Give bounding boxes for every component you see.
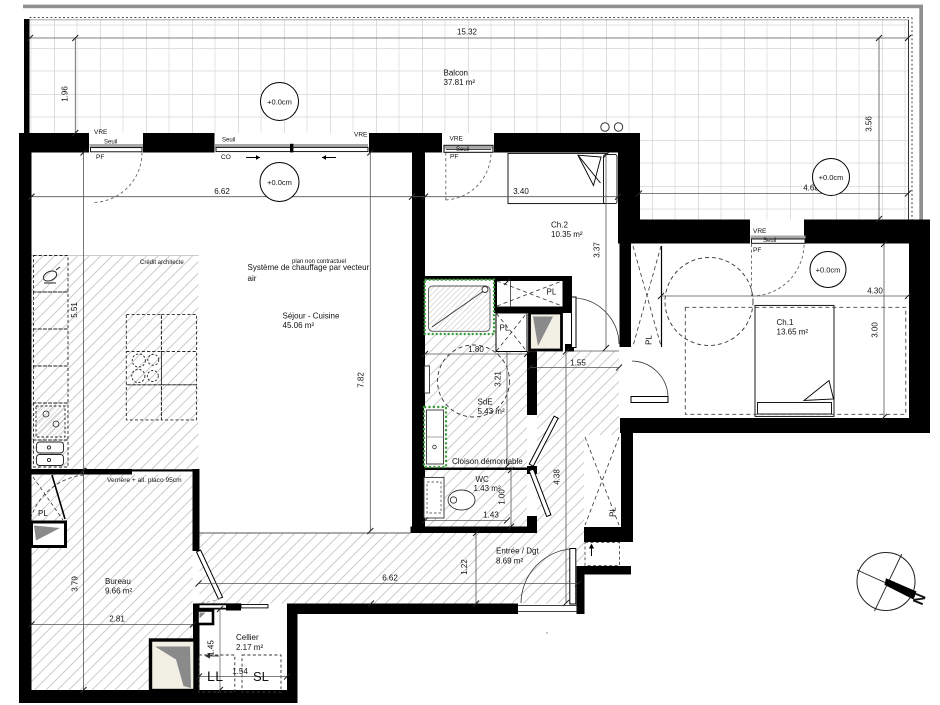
svg-text:5.51: 5.51 xyxy=(70,302,79,318)
svg-text:PL: PL xyxy=(547,288,557,297)
svg-text:15.32: 15.32 xyxy=(457,28,478,37)
svg-text:WC: WC xyxy=(476,475,490,484)
svg-text:CO: CO xyxy=(221,154,231,161)
svg-text:3.79: 3.79 xyxy=(71,576,80,592)
svg-text:Entrée / Dgt: Entrée / Dgt xyxy=(496,547,539,556)
svg-text:PL: PL xyxy=(609,507,618,517)
svg-text:+0.0cm: +0.0cm xyxy=(816,266,841,275)
svg-text:2.81: 2.81 xyxy=(109,615,125,624)
svg-text:+0.0cm: +0.0cm xyxy=(267,98,292,107)
svg-text:+0.0cm: +0.0cm xyxy=(819,173,844,182)
svg-text:1.43: 1.43 xyxy=(483,511,499,520)
svg-text:Séjour - Cuisine: Séjour - Cuisine xyxy=(283,312,340,321)
svg-text:LL: LL xyxy=(207,668,224,684)
svg-text:VRE: VRE xyxy=(354,132,368,139)
svg-text:4.38: 4.38 xyxy=(553,469,562,485)
svg-text:1.96: 1.96 xyxy=(61,86,70,102)
svg-text:7.82: 7.82 xyxy=(357,372,366,388)
svg-text:Seuil: Seuil xyxy=(456,147,469,153)
svg-text:PF: PF xyxy=(96,154,104,161)
svg-text:plan non contractuel: plan non contractuel xyxy=(292,259,346,265)
svg-text:1.45: 1.45 xyxy=(207,640,216,656)
svg-text:10.35 m²: 10.35 m² xyxy=(551,230,583,239)
svg-text:PF: PF xyxy=(450,154,458,161)
svg-text:VRE: VRE xyxy=(94,129,108,136)
svg-text:8.69 m²: 8.69 m² xyxy=(496,557,523,566)
svg-text:1.43 m²: 1.43 m² xyxy=(474,484,501,493)
svg-text:Seuil: Seuil xyxy=(222,138,235,144)
svg-text:Bureau: Bureau xyxy=(105,577,131,586)
svg-text:VRE: VRE xyxy=(753,228,767,235)
svg-text:VRE: VRE xyxy=(450,136,464,143)
svg-text:3.21: 3.21 xyxy=(494,371,503,387)
svg-text:4.30: 4.30 xyxy=(867,287,883,296)
svg-text:3.40: 3.40 xyxy=(513,187,529,196)
svg-text:3.00: 3.00 xyxy=(871,322,880,338)
svg-text:2.17 m²: 2.17 m² xyxy=(236,643,263,652)
svg-text:Seuil: Seuil xyxy=(104,140,117,146)
svg-text:37.81 m²: 37.81 m² xyxy=(444,78,476,87)
svg-text:1.54: 1.54 xyxy=(232,667,248,676)
svg-text:Verrière + all. placo 95cm: Verrière + all. placo 95cm xyxy=(107,477,182,484)
svg-text:air: air xyxy=(248,274,257,283)
svg-text:9.66 m²: 9.66 m² xyxy=(105,587,132,596)
svg-text:PL: PL xyxy=(38,509,48,518)
svg-text:6.62: 6.62 xyxy=(214,187,230,196)
svg-text:1.22: 1.22 xyxy=(460,559,469,575)
svg-text:Cloison démontable: Cloison démontable xyxy=(452,457,523,466)
svg-text:13.65 m²: 13.65 m² xyxy=(777,328,809,337)
svg-text:Balcon: Balcon xyxy=(444,69,468,78)
svg-text:5.43 m²: 5.43 m² xyxy=(478,407,505,416)
svg-text:3.37: 3.37 xyxy=(593,242,602,258)
svg-text:Seuil: Seuil xyxy=(763,238,776,244)
svg-text:1.80: 1.80 xyxy=(468,345,484,354)
svg-text:,: , xyxy=(546,628,548,635)
svg-text:PL: PL xyxy=(500,324,510,333)
svg-text:1.55: 1.55 xyxy=(570,359,586,368)
svg-text:45.06 m²: 45.06 m² xyxy=(283,321,315,330)
svg-text:6.62: 6.62 xyxy=(382,574,398,583)
svg-text:Crédit architecte: Crédit architecte xyxy=(140,260,184,266)
svg-text:SL: SL xyxy=(253,669,269,684)
svg-text:PL: PL xyxy=(645,335,654,345)
svg-text:3.56: 3.56 xyxy=(865,116,874,132)
svg-text:Ch.2: Ch.2 xyxy=(551,221,568,230)
svg-text:SdE: SdE xyxy=(478,398,493,407)
svg-text:Cellier: Cellier xyxy=(236,633,259,642)
svg-text:Ch.1: Ch.1 xyxy=(777,318,794,327)
svg-text:PF: PF xyxy=(753,247,761,254)
svg-text:+0.0cm: +0.0cm xyxy=(267,178,292,187)
